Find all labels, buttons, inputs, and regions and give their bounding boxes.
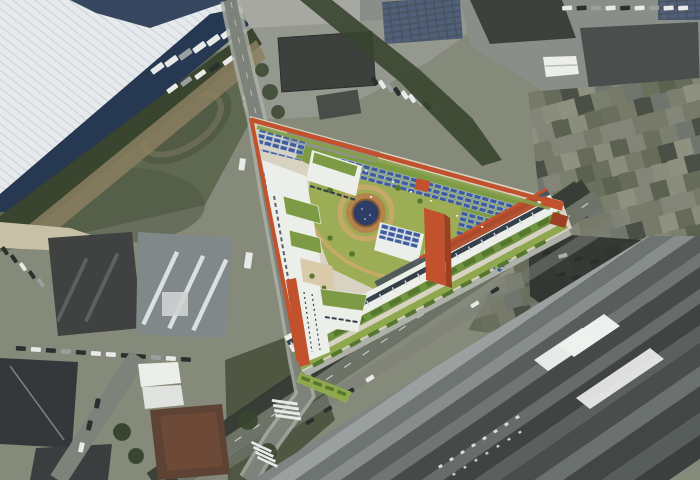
parked-vehicle — [635, 5, 645, 10]
parked-vehicle — [181, 357, 191, 362]
parked-vehicle — [91, 351, 101, 356]
car-row-ne — [562, 5, 688, 10]
parked-vehicle — [31, 347, 41, 352]
parked-vehicle — [562, 5, 572, 10]
parked-vehicle — [649, 5, 659, 10]
parked-vehicle — [591, 5, 601, 10]
factory-roof-dark — [48, 232, 142, 336]
white-roof-patch — [162, 292, 188, 316]
mosaic-dot — [364, 218, 366, 220]
parked-vehicle — [61, 349, 71, 354]
parked-vehicle — [664, 5, 674, 10]
solar-roof-building-north — [382, 0, 463, 44]
parked-vehicle — [151, 355, 161, 360]
parked-vehicle — [577, 5, 587, 10]
tree — [113, 423, 131, 441]
parked-vehicle — [76, 350, 86, 355]
white-tent-sw-2 — [142, 385, 184, 409]
parked-vehicle — [46, 348, 56, 353]
white-tent-sw-1 — [138, 362, 181, 387]
factory-roof-gray — [136, 232, 232, 338]
brown-building-roof — [160, 412, 223, 471]
tree — [128, 448, 144, 464]
mosaic-dot — [361, 208, 363, 210]
parked-vehicle — [606, 5, 616, 10]
parked-vehicle — [678, 5, 688, 10]
gable-roof-1 — [0, 358, 78, 448]
mosaic-dot — [369, 214, 371, 216]
parked-vehicle — [106, 352, 116, 357]
plaza-tree — [309, 273, 314, 278]
parked-vehicle — [620, 5, 630, 10]
parked-vehicle — [16, 346, 26, 351]
circle-plaza-mosaic — [354, 201, 379, 226]
aerial-scene — [0, 0, 700, 480]
parked-vehicle — [166, 356, 176, 361]
campus-orange-tower — [424, 208, 452, 288]
satellite-image — [0, 0, 700, 480]
tree — [238, 410, 258, 430]
tent-ridge — [545, 65, 578, 66]
